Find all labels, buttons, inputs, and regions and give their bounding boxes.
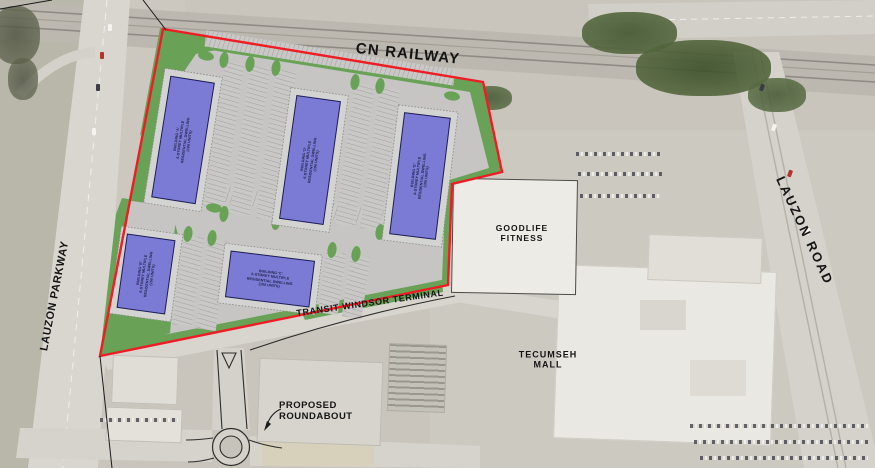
roundabout-line2: ROUNDABOUT [279,412,353,423]
tecumseh-line1: TECUMSEH [519,350,578,360]
site-plan-layer [0,0,875,468]
roundabout-leader-arrowhead [264,421,271,431]
aerial-site-plan-map: CN RAILWAY LAUZON PARKWAY LAUZON ROAD TR… [0,0,875,468]
proposed-roundabout-label: PROPOSED ROUNDABOUT [279,401,353,423]
goodlife-line2: FITNESS [496,234,548,244]
tecumseh-mall-label: TECUMSEH MALL [519,350,578,371]
tecumseh-line2: MALL [519,360,578,370]
goodlife-fitness-label: GOODLIFE FITNESS [496,224,548,244]
roundabout-inner-circle [220,436,242,458]
